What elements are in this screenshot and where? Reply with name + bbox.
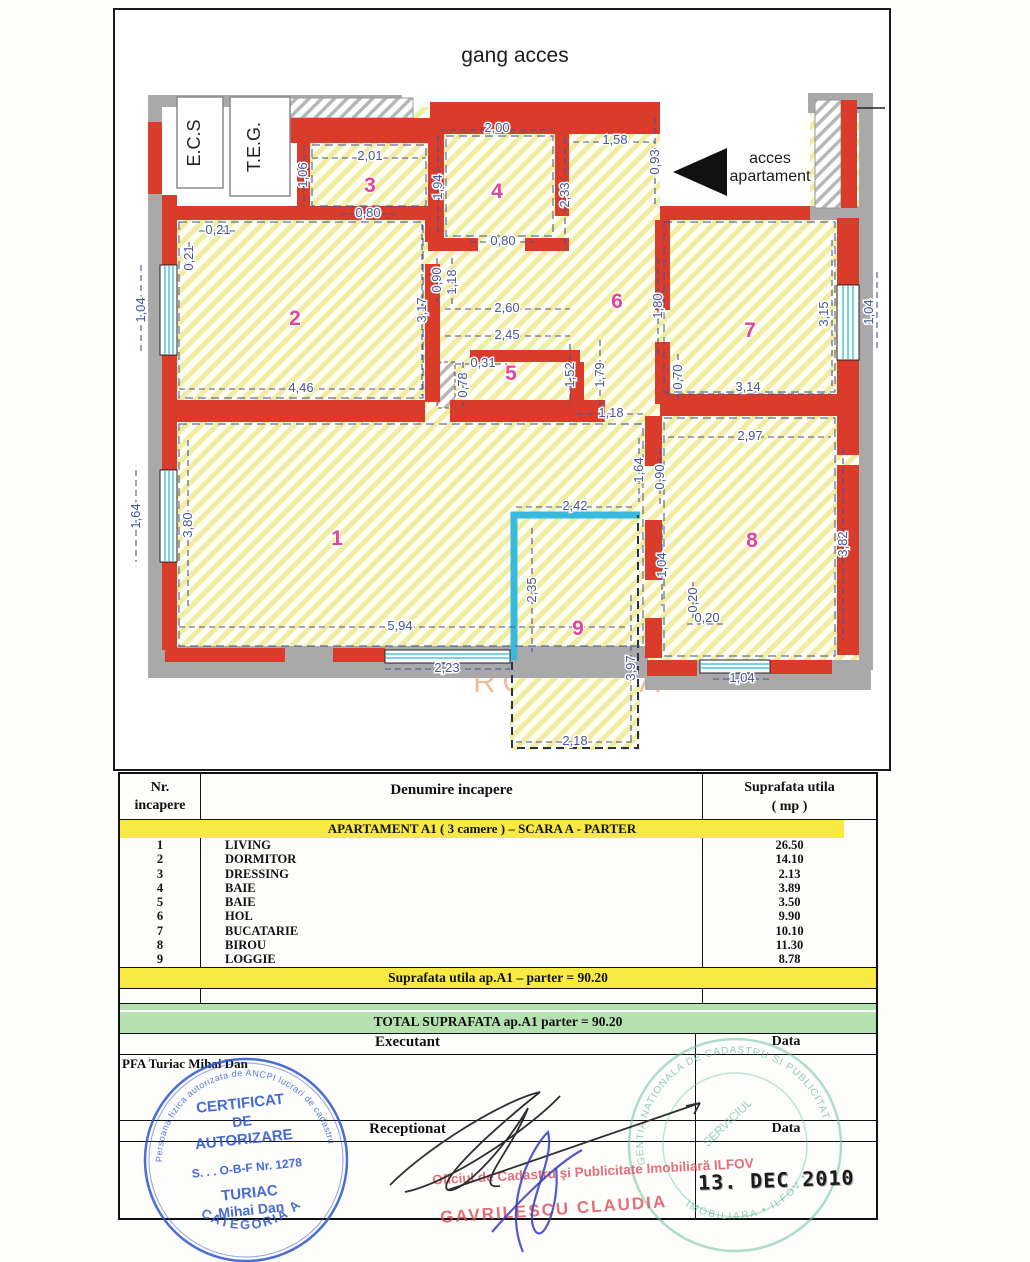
dim-label: 2,01: [357, 148, 382, 163]
dim-label: 2,60: [494, 300, 519, 315]
dim-label: 0,70: [670, 364, 685, 389]
dim-label: 0,80: [490, 233, 515, 248]
row-area: 10.10: [702, 924, 876, 938]
data-header-1: Data: [695, 1034, 876, 1054]
dim-label: 1,64: [631, 457, 646, 482]
ecs-label: E.C.S: [184, 119, 204, 166]
row-nr: 4: [120, 881, 200, 895]
green-strip: [120, 1003, 876, 1010]
dim-label: 3,17: [414, 297, 429, 322]
executant-data-cell: [695, 1055, 876, 1120]
shaft-hatch-right: [815, 100, 841, 208]
row-area: 2.13: [702, 867, 876, 881]
table-row: 8BIROU11.30: [120, 938, 876, 952]
receptionat-header: Receptionat: [120, 1121, 695, 1141]
room-label-7: 7: [744, 319, 756, 342]
table-row: 3DRESSING2.13: [120, 867, 876, 881]
table-row: 1LIVING26.50: [120, 838, 876, 852]
row-area: 8.78: [702, 952, 876, 966]
executant-name: PFA Turiac Mihai Dan: [120, 1055, 695, 1120]
document-page: gang acces ROMANIA: [0, 0, 1030, 1262]
col-header-nr-line2: incapere: [120, 797, 200, 815]
row-nr: 8: [120, 938, 200, 952]
dim-label: 0,21: [181, 245, 196, 270]
table-row: 7BUCATARIE10.10: [120, 924, 876, 938]
row-area: 26.50: [702, 838, 876, 852]
dim-label: 1,06: [295, 162, 310, 187]
dim-label: 3,14: [735, 379, 760, 394]
dim-label: 1,79: [592, 362, 607, 387]
row-area: 3.50: [702, 895, 876, 909]
room-label-5: 5: [505, 362, 517, 385]
room-label-1: 1: [331, 527, 343, 550]
dim-label: 3,80: [180, 512, 195, 537]
dim-label: 3,82: [835, 531, 850, 556]
dim-label: 2,23: [434, 660, 459, 675]
dim-label: 0,80: [355, 205, 380, 220]
row-area: 9.90: [702, 909, 876, 923]
dim-label: 0,78: [455, 372, 470, 397]
shaft-hatch-top: [290, 98, 413, 118]
receptionat-data-cell: [695, 1142, 876, 1218]
dim-label: 1,04: [654, 552, 669, 577]
row-area: 14.10: [702, 852, 876, 866]
service-boxes: E.C.S T.E.G.: [177, 97, 290, 196]
dim-label: 0,90: [652, 464, 667, 489]
dim-label: 1,52: [562, 362, 577, 387]
dim-label: 0,31: [470, 355, 495, 370]
row-name: DRESSING: [200, 867, 702, 881]
col-header-area-line2: ( mp ): [703, 798, 876, 817]
row-name: HOL: [200, 909, 702, 923]
table-row: 5BAIE3.50: [120, 895, 876, 909]
col-header-name: Denumire incapere: [200, 774, 702, 819]
room-label-8: 8: [746, 529, 758, 552]
room-label-2: 2: [289, 307, 301, 330]
access-label-1: acces: [749, 150, 791, 167]
row-name: BIROU: [200, 938, 702, 952]
dim-label: 1,94: [430, 174, 445, 199]
row-area: 3.89: [702, 881, 876, 895]
row-nr: 7: [120, 924, 200, 938]
spacer-row: [120, 989, 876, 1003]
dim-label: 2,97: [737, 428, 762, 443]
dim-label: 3,15: [816, 301, 831, 326]
dim-label: 1,04: [861, 299, 876, 324]
plan-title: gang acces: [461, 44, 568, 67]
table-row: 9LOGGIE8.78: [120, 952, 876, 966]
dim-label: 1,64: [128, 503, 143, 528]
room-label-3: 3: [364, 174, 376, 197]
receptionat-sign-cell: [120, 1142, 695, 1218]
dim-label: 5,94: [387, 618, 412, 633]
room-rows: 1LIVING26.50 2DORMITOR14.10 3DRESSING2.1…: [120, 838, 876, 967]
dim-label: 0,20: [685, 587, 700, 612]
row-name: DORMITOR: [200, 852, 702, 866]
section-header-band: APARTAMENT A1 ( 3 camere ) – SCARA A - P…: [120, 820, 844, 838]
row-name: BAIE: [200, 881, 702, 895]
dim-label: 1,04: [729, 670, 754, 685]
row-nr: 9: [120, 952, 200, 966]
row-area: 11.30: [702, 938, 876, 952]
dim-label: 1,80: [650, 293, 665, 318]
dim-label: 0,90: [429, 267, 444, 292]
dim-label: 2,45: [494, 327, 519, 342]
room-label-9: 9: [572, 617, 584, 640]
col-header-area: Suprafata utila ( mp ): [702, 774, 876, 819]
row-nr: 2: [120, 852, 200, 866]
dim-label: 1,18: [598, 405, 623, 420]
room-label-4: 4: [491, 180, 503, 203]
row-nr: 3: [120, 867, 200, 881]
executant-header: Executant: [120, 1034, 695, 1054]
dim-label: 2,18: [562, 733, 587, 748]
col-header-nr: Nr. incapere: [120, 774, 200, 819]
data-header-2: Data: [695, 1121, 876, 1141]
table-row: 6HOL9.90: [120, 909, 876, 923]
row-name: BAIE: [200, 895, 702, 909]
subtotal-band: Suprafata utila ap.A1 – parter = 90.20: [120, 967, 876, 989]
row-nr: 1: [120, 838, 200, 852]
dim-label: 1,58: [602, 132, 627, 147]
dim-label: 2,00: [484, 120, 509, 135]
col-header-area-line1: Suprafata utila: [703, 779, 876, 798]
dim-label: 2,42: [562, 498, 587, 513]
table-row: 4BAIE3.89: [120, 881, 876, 895]
dim-label: 2,33: [557, 182, 572, 207]
floorplan-frame: gang acces ROMANIA: [113, 8, 891, 771]
dim-label: 2,35: [524, 577, 539, 602]
dim-label: 4,46: [288, 380, 313, 395]
row-name: BUCATARIE: [200, 924, 702, 938]
total-band: TOTAL SUPRAFATA ap.A1 parter = 90.20: [120, 1012, 876, 1034]
dim-label: 1,04: [133, 297, 148, 322]
dim-label: 0,93: [647, 149, 662, 174]
area-table: Nr. incapere Denumire incapere Suprafata…: [118, 772, 878, 1220]
dim-label: 3,97: [623, 655, 638, 680]
room-label-6: 6: [611, 290, 623, 313]
access-label-2: apartament: [730, 168, 811, 185]
row-nr: 5: [120, 895, 200, 909]
floorplan-drawing: gang acces ROMANIA: [115, 10, 885, 765]
row-name: LOGGIE: [200, 952, 702, 966]
dim-label: 1,18: [444, 269, 459, 294]
teg-label: T.E.G.: [244, 122, 264, 172]
table-row: 2DORMITOR14.10: [120, 852, 876, 866]
dim-label: 0,21: [205, 222, 230, 237]
row-name: LIVING: [200, 838, 702, 852]
row-nr: 6: [120, 909, 200, 923]
col-header-nr-line1: Nr.: [120, 779, 200, 797]
